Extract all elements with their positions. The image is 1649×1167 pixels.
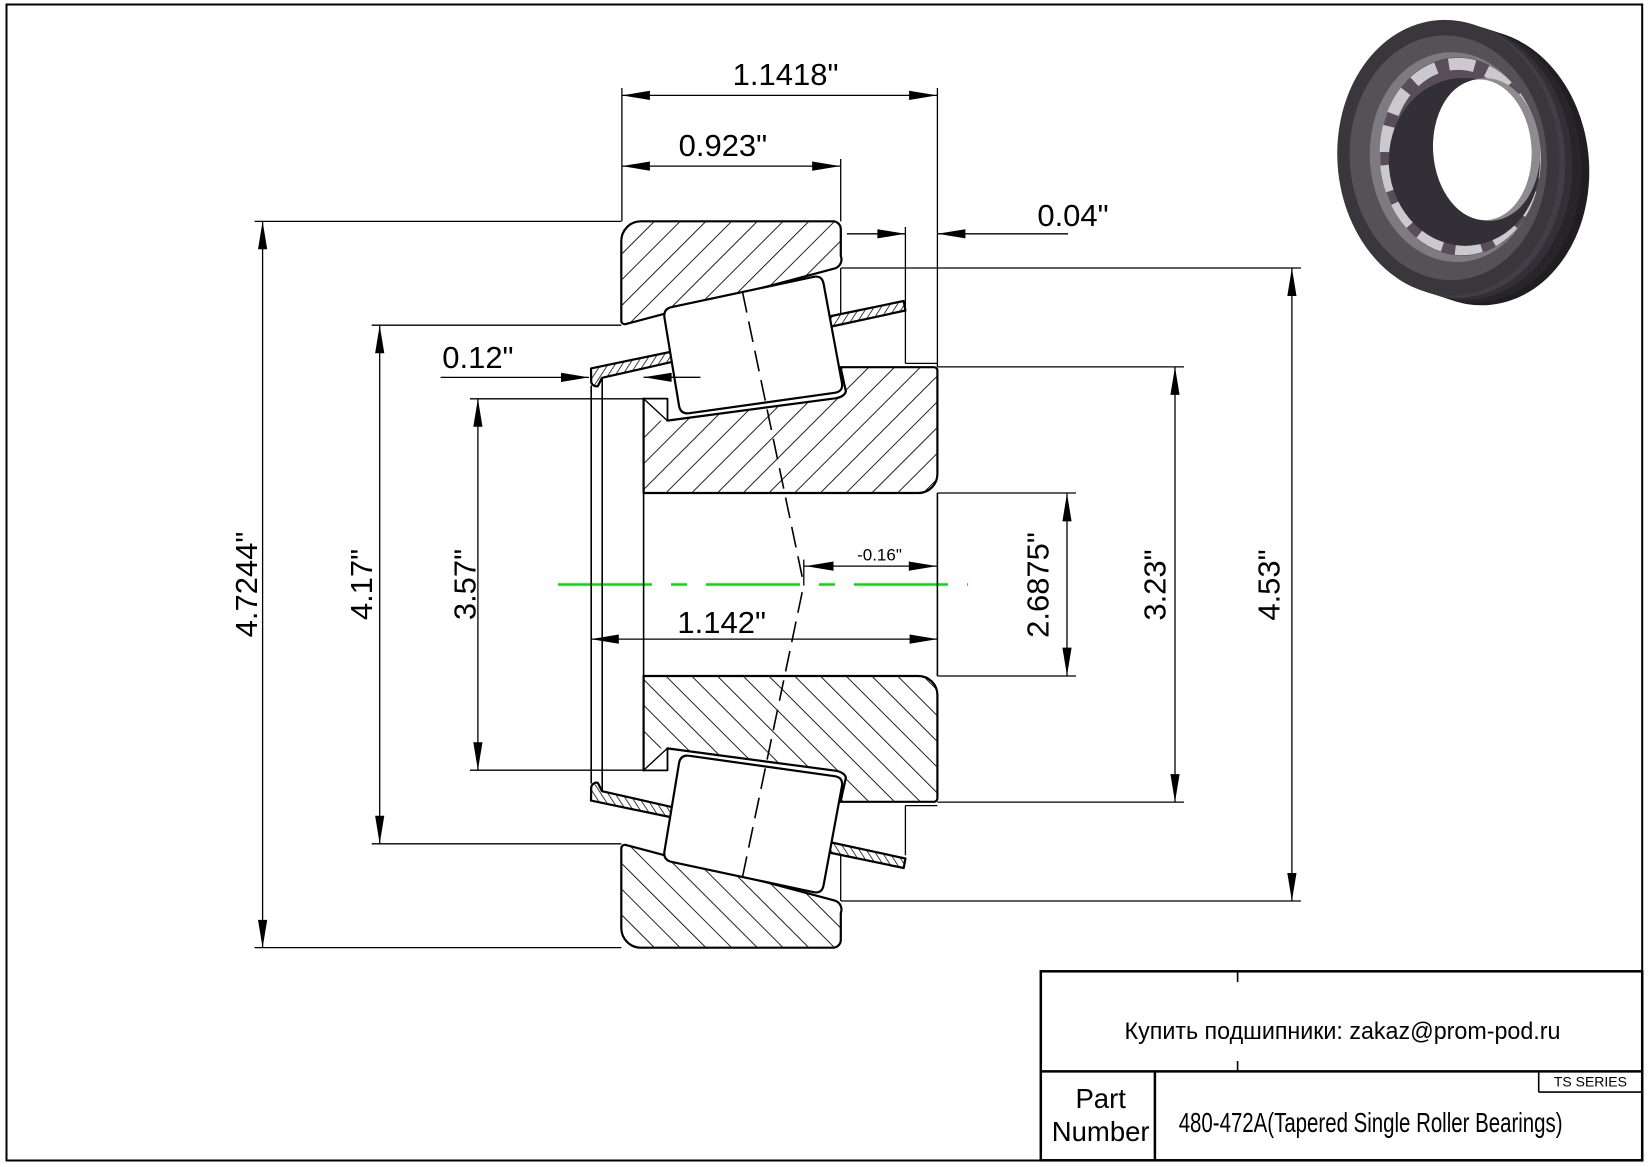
svg-text:3.57": 3.57" — [448, 549, 483, 620]
svg-text:3.23": 3.23" — [1138, 549, 1173, 620]
svg-text:4.53": 4.53" — [1252, 549, 1287, 620]
svg-text:TS SERIES: TS SERIES — [1554, 1073, 1627, 1089]
svg-text:480-472A(Tapered Single Roller: 480-472A(Tapered Single Roller Bearings) — [1179, 1108, 1563, 1139]
svg-text:-0.16": -0.16" — [857, 546, 902, 565]
svg-text:2.6875": 2.6875" — [1021, 532, 1056, 638]
svg-text:Part: Part — [1075, 1083, 1126, 1114]
svg-text:4.7244": 4.7244" — [229, 532, 264, 638]
svg-text:4.17": 4.17" — [344, 549, 379, 620]
svg-text:0.12": 0.12" — [442, 340, 513, 375]
svg-text:1.142": 1.142" — [677, 605, 766, 640]
svg-text:Number: Number — [1052, 1116, 1150, 1147]
svg-text:0.923": 0.923" — [679, 128, 768, 163]
svg-text:Купить подшипники: zakaz@prom-: Купить подшипники: zakaz@prom-pod.ru — [1125, 1018, 1561, 1044]
svg-text:0.04": 0.04" — [1037, 198, 1108, 233]
svg-text:1.1418": 1.1418" — [733, 57, 839, 92]
